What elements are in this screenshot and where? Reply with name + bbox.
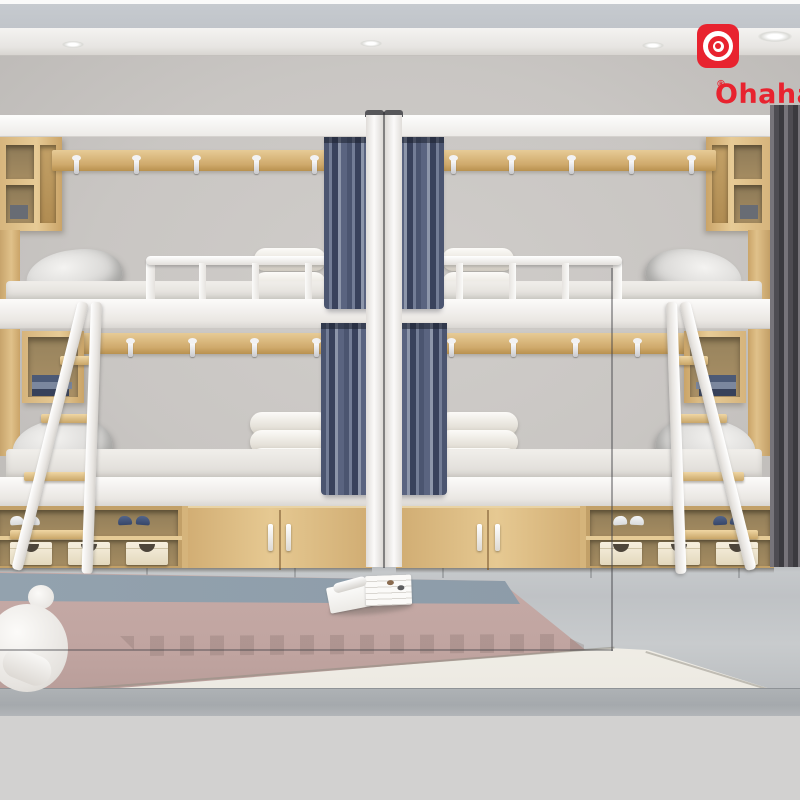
guard-rail-bar [509, 263, 516, 301]
registered-trademark: ® [716, 79, 727, 90]
glass-panel-edge-vertical [611, 268, 613, 651]
shelf-compartment [734, 145, 762, 179]
unit-seam [383, 112, 385, 568]
coat-hook [314, 342, 319, 357]
guard-rail-bar [456, 263, 463, 301]
storage-shadow [396, 568, 774, 573]
coat-hook [573, 342, 578, 357]
coat-hook [511, 342, 516, 357]
storage-drawer-box [126, 542, 168, 565]
cabinet-door-gap [487, 510, 489, 570]
side-wood-column [748, 230, 770, 456]
coat-hook [451, 159, 456, 174]
glass-panel-edge-horizontal [0, 649, 613, 651]
upper-privacy-curtain [324, 137, 371, 309]
storage-cabinet [188, 506, 372, 568]
coat-hook [312, 159, 317, 174]
storage-cabinet [396, 506, 580, 568]
open-magazine [324, 570, 416, 622]
shoe [613, 516, 628, 526]
marble-floor-front [0, 688, 800, 716]
cabinet-door-gap [279, 510, 281, 570]
upper-bunk-mattress [396, 281, 762, 301]
stored-item [740, 205, 758, 219]
guard-rail-bar [199, 263, 206, 301]
storage-shadow [0, 568, 372, 573]
shelf-compartment [6, 145, 34, 179]
cabinet-handle [495, 524, 500, 551]
lower-privacy-curtain [397, 323, 447, 495]
lower-privacy-curtain [321, 323, 371, 495]
side-drape [770, 105, 800, 567]
center-post [384, 115, 402, 567]
guard-rail-bar [252, 263, 259, 301]
upper-privacy-curtain [397, 137, 444, 309]
shoe [630, 516, 644, 526]
coat-hook [569, 159, 574, 174]
guard-rail-bar [305, 263, 312, 301]
target-icon [703, 31, 733, 61]
top-frame-beam [384, 115, 774, 137]
coat-hook [194, 159, 199, 174]
shoe [118, 516, 132, 526]
coat-hook [190, 342, 195, 357]
coat-hook [689, 159, 694, 174]
dorm-bunk-bed-product-photo: Ohaha® [0, 0, 800, 800]
coat-hook [252, 342, 257, 357]
center-post [366, 115, 384, 567]
brand-name-text: Ohaha [715, 79, 800, 110]
shelf-compartment [6, 185, 34, 223]
shelf-compartment [734, 185, 762, 223]
coat-hook [74, 159, 79, 174]
bottom-border [0, 716, 800, 800]
side-wood-column [0, 230, 20, 456]
cabinet-handle [268, 524, 273, 551]
upper-bunk-mattress [6, 281, 372, 301]
brand-logo [697, 24, 739, 68]
cabinet-handle [477, 524, 482, 551]
coat-hook [449, 342, 454, 357]
coat-hook [629, 159, 634, 174]
cabinet-handle [286, 524, 291, 551]
top-frame-beam [0, 115, 384, 137]
shoe [713, 516, 727, 526]
coat-hook [509, 159, 514, 174]
stored-item [10, 205, 28, 219]
coat-hook [635, 342, 640, 357]
guard-rail-bar [562, 263, 569, 301]
upper-hook-rail [52, 150, 340, 171]
upper-hook-rail [428, 150, 716, 171]
storage-drawer-box [600, 542, 642, 565]
coat-hook [128, 342, 133, 357]
coat-hook [254, 159, 259, 174]
coat-hook [134, 159, 139, 174]
